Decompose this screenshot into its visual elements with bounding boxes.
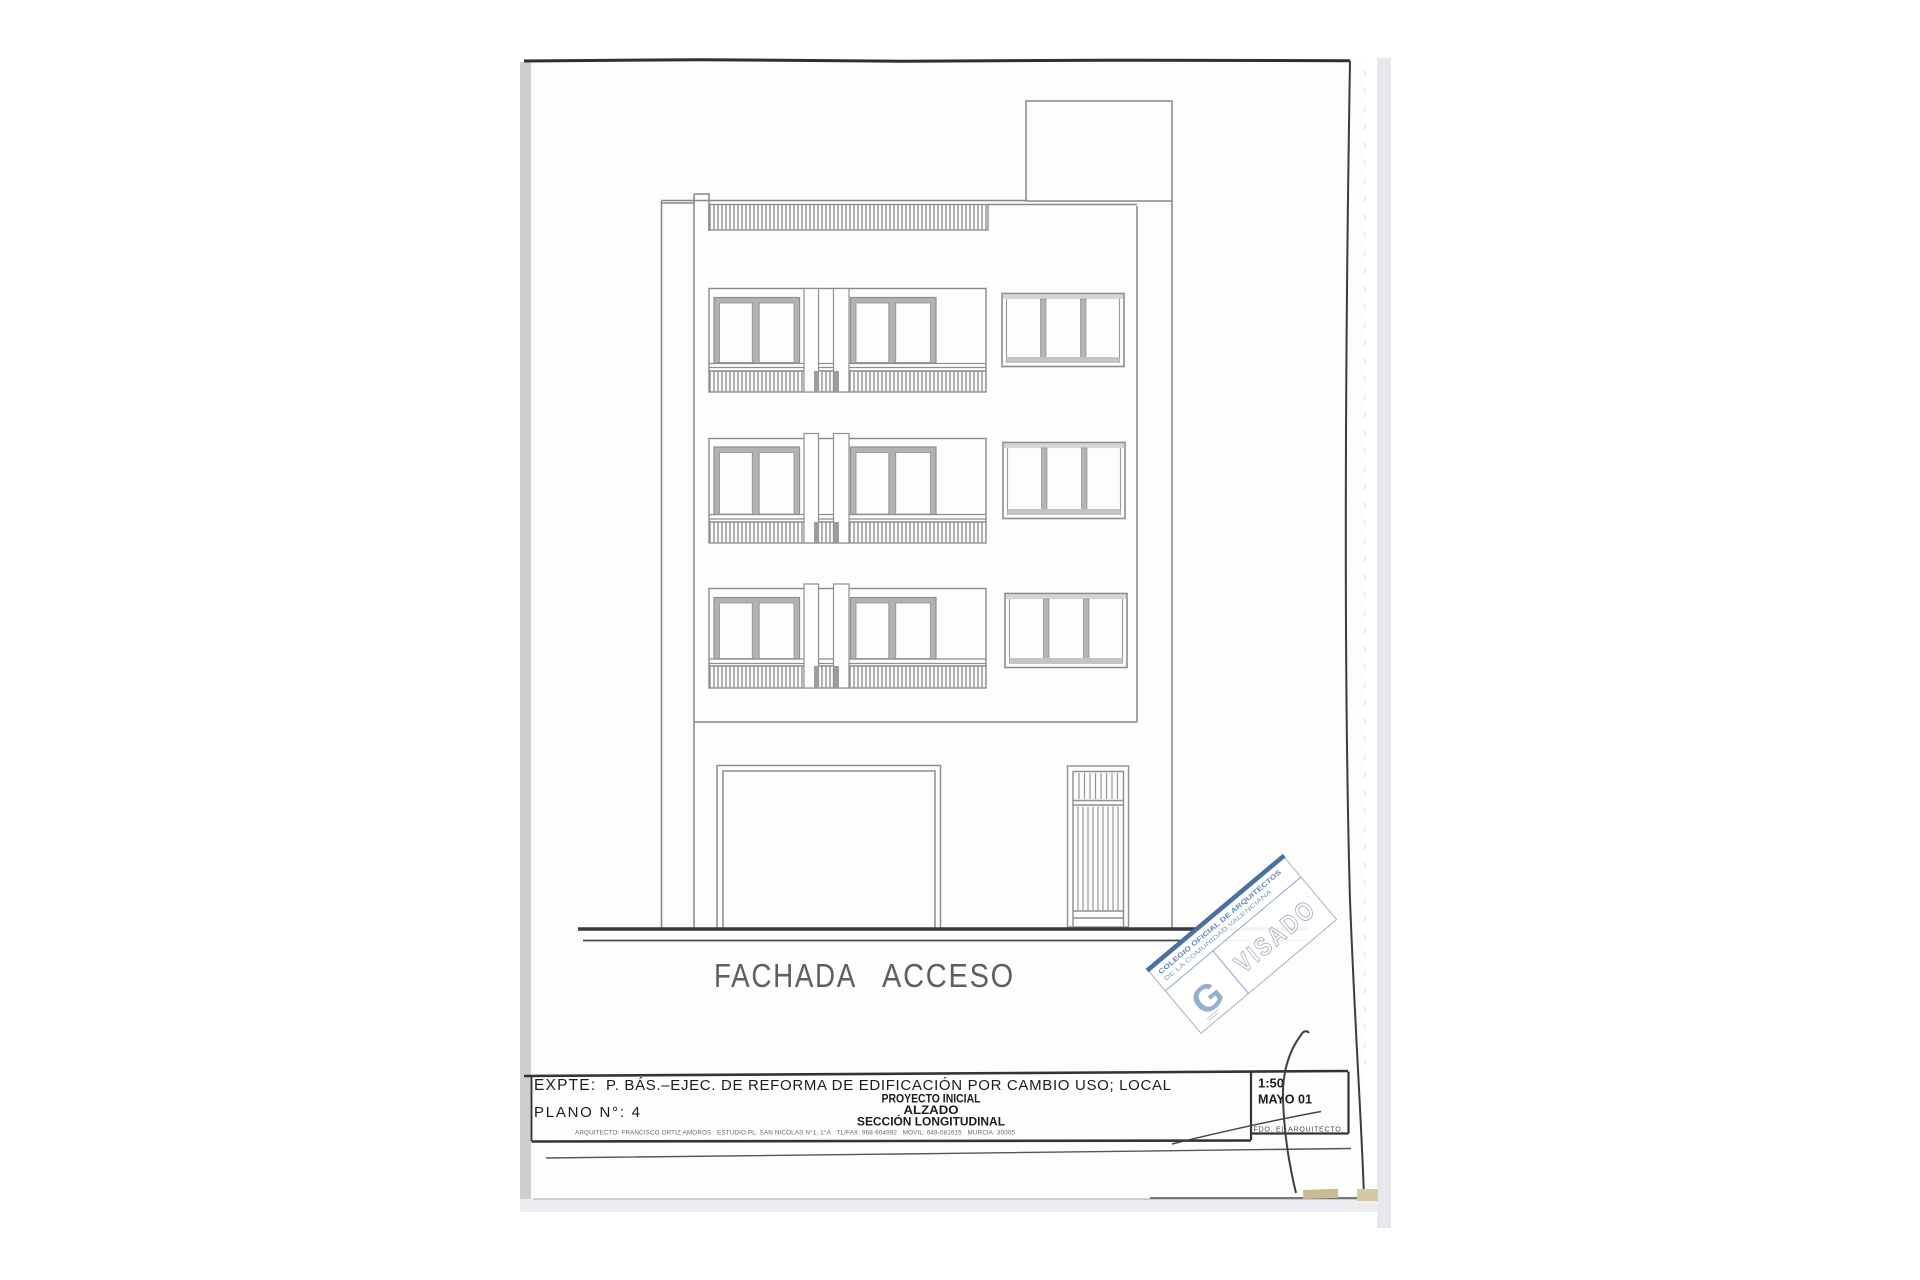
svg-text:ARQUITECTO: FRANCISCO ORTIZ AM: ARQUITECTO: FRANCISCO ORTIZ AMOROS ESTUD…	[575, 1129, 1015, 1137]
svg-text:FDO. EL ARQUITECTO.: FDO. EL ARQUITECTO.	[1254, 1125, 1344, 1134]
svg-text:P. BÁS.–EJEC. DE REFORMA DE ED: P. BÁS.–EJEC. DE REFORMA DE EDIFICACIÓN …	[606, 1077, 1171, 1094]
svg-text:MAYO 01: MAYO 01	[1258, 1092, 1312, 1107]
svg-text:ALZADO: ALZADO	[904, 1105, 959, 1117]
svg-text:PROYECTO INICIAL: PROYECTO INICIAL	[882, 1094, 981, 1106]
svg-text:EXPTE:: EXPTE:	[534, 1077, 596, 1094]
svg-text:SECCIÓN LONGITUDINAL: SECCIÓN LONGITUDINAL	[857, 1116, 1005, 1129]
svg-text:1:50: 1:50	[1258, 1076, 1284, 1091]
svg-text:FACHADA: FACHADA	[714, 957, 857, 994]
svg-text:ACCESO: ACCESO	[882, 957, 1015, 994]
